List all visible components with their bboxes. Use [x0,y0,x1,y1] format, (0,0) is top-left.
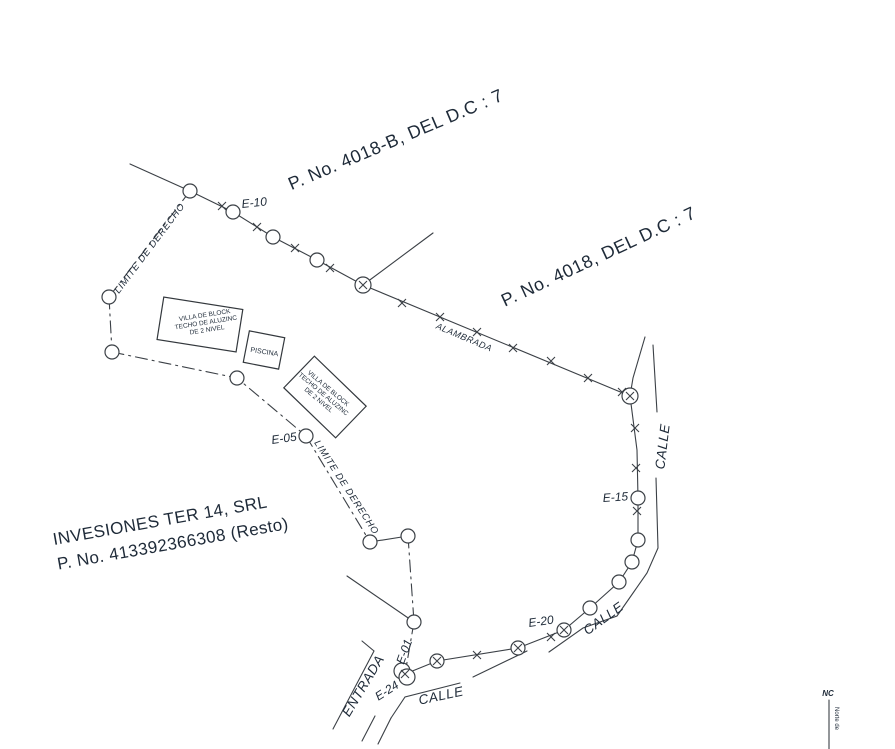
station-e24-label: E-24 [372,678,401,704]
station-e05-label: E-05 [270,430,297,447]
north-note-label: Norte de [833,707,839,731]
parcel-4018-label: P. No. 4018, DEL D.C : 7 [498,203,699,311]
parcel-owner-label: INVESIONES TER 14, SRL P. No. 4133923663… [51,490,290,574]
building-villa-a-label: VILLA DE BLOCK TECHO DE ALUZINC DE 2 NIV… [173,307,239,339]
street-calle-east-label: CALLE [652,422,673,470]
margin-north-reference: NC Norte de [822,689,839,749]
limite-derecho-west-label: LIMITE DE DERECHO [112,201,187,296]
alambrada-label: ALAMBRADA [434,321,494,354]
survey-plan-drawing: VILLA DE BLOCK TECHO DE ALUZINC DE 2 NIV… [0,0,895,749]
station-e20-label: E-20 [527,613,554,630]
street-calle-south-label: CALLE [417,683,465,707]
street-edges [333,345,658,744]
survey-points [102,184,645,685]
parcel-4018b-label: P. No. 4018-B, DEL D.C : 7 [285,85,506,194]
piscina-label: PISCINA [250,347,279,358]
survey-plan-canvas: VILLA DE BLOCK TECHO DE ALUZINC DE 2 NIV… [0,0,895,749]
building-villa-b-label: VILLA DE BLOCK TECHO DE ALUZINC DE 2 NIV… [292,366,355,423]
limit-lines [109,191,414,674]
nc-label: NC [822,689,834,698]
station-e10-label: E-10 [241,194,268,211]
station-e01-label: E-01 [393,637,415,666]
station-e15-label: E-15 [602,489,629,505]
limite-derecho-south-label: LIMITE DE DERECHO [311,438,380,536]
